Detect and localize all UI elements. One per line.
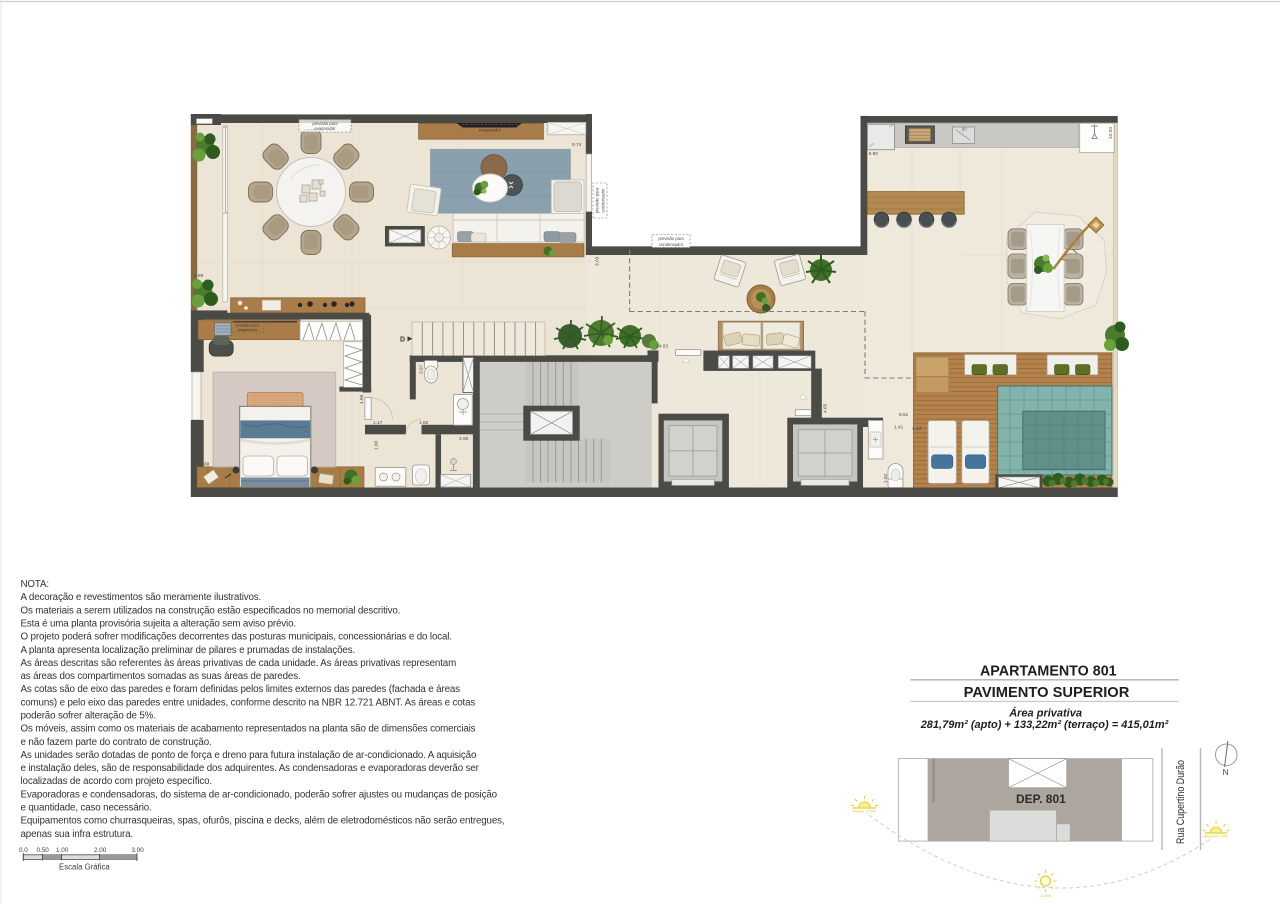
svg-text:0.0: 0.0 xyxy=(19,847,28,854)
svg-text:e instalação deles, são de res: e instalação deles, são de responsabilid… xyxy=(21,763,480,774)
svg-text:As cotas são de eixo das pared: As cotas são de eixo das paredes e foram… xyxy=(21,684,461,695)
svg-text:1.60: 1.60 xyxy=(374,440,380,450)
svg-text:e não fazem parte do contrato: e não fazem parte do contrato de constru… xyxy=(21,737,212,748)
svg-text:0.89: 0.89 xyxy=(194,273,204,279)
svg-text:comuns) e pelo eixo das parede: comuns) e pelo eixo das paredes entre un… xyxy=(21,697,476,708)
svg-text:8.51: 8.51 xyxy=(899,412,909,418)
svg-text:e quantidade, caso necessário.: e quantidade, caso necessário. xyxy=(21,803,152,814)
svg-text:NOTA:: NOTA: xyxy=(21,579,49,590)
svg-text:5.34: 5.34 xyxy=(208,132,214,142)
svg-text:281,79m² (apto) + 133,22m² (te: 281,79m² (apto) + 133,22m² (terraço) = 4… xyxy=(920,719,1169,731)
svg-text:Escala Gráfica: Escala Gráfica xyxy=(59,863,110,872)
svg-text:1.92: 1.92 xyxy=(883,473,889,483)
svg-text:As unidades serão dotadas de p: As unidades serão dotadas de ponto de fo… xyxy=(21,750,477,761)
svg-text:As áreas descritas são referen: As áreas descritas são referentes às áre… xyxy=(21,658,457,669)
svg-text:PAVIMENTO SUPERIOR: PAVIMENTO SUPERIOR xyxy=(964,685,1130,701)
svg-text:condensador: condensador xyxy=(601,188,606,213)
svg-text:condensador: condensador xyxy=(659,242,684,247)
svg-text:O projeto poderá sofrer modifi: O projeto poderá sofrer modificações dec… xyxy=(21,632,452,643)
svg-text:Equipamentos como churrasqueir: Equipamentos como churrasqueiras, spas, … xyxy=(21,816,505,827)
svg-text:A decoração e revestimentos sã: A decoração e revestimentos são merament… xyxy=(21,592,262,603)
svg-text:N: N xyxy=(1223,767,1229,777)
svg-text:DEP. 801: DEP. 801 xyxy=(1016,792,1066,806)
svg-text:3.00: 3.00 xyxy=(132,847,145,854)
svg-text:Área privativa: Área privativa xyxy=(1008,707,1082,720)
svg-text:A planta apresenta localização: A planta apresenta localização prelimina… xyxy=(21,645,356,656)
svg-text:Evaporadoras e condensadoras,: Evaporadoras e condensadoras, do sistema… xyxy=(21,789,498,800)
svg-text:previsão para: previsão para xyxy=(236,324,260,328)
svg-text:2.90: 2.90 xyxy=(459,436,469,442)
svg-text:14.03: 14.03 xyxy=(656,344,668,350)
svg-text:apenas sua infra estrutura.: apenas sua infra estrutura. xyxy=(21,829,134,840)
svg-text:previsão para: previsão para xyxy=(312,121,338,126)
svg-text:evaporador: evaporador xyxy=(238,328,258,332)
svg-text:evaporador: evaporador xyxy=(314,126,336,131)
svg-text:9.74: 9.74 xyxy=(572,142,582,148)
svg-text:Esta é uma planta provisória s: Esta é uma planta provisória sujeita a a… xyxy=(21,619,296,630)
svg-text:12:00h: 12:00h xyxy=(1040,894,1051,898)
svg-text:D: D xyxy=(400,337,405,344)
svg-text:1.41: 1.41 xyxy=(894,425,904,431)
svg-text:Os materiais a serem utilizado: Os materiais a serem utilizados na const… xyxy=(21,605,401,616)
svg-text:localizadas de acordo com proj: localizadas de acordo com projeto especí… xyxy=(21,776,212,787)
svg-text:0.50: 0.50 xyxy=(37,847,50,854)
svg-text:1.00: 1.00 xyxy=(56,847,69,854)
svg-text:1.82: 1.82 xyxy=(419,420,429,426)
svg-text:4.65: 4.65 xyxy=(823,403,829,413)
svg-text:4.43: 4.43 xyxy=(912,426,922,432)
svg-text:poderão sofrer alteração de 5%: poderão sofrer alteração de 5%. xyxy=(21,711,156,722)
svg-text:2.00: 2.00 xyxy=(94,847,107,854)
svg-text:Nascente 7:00h: Nascente 7:00h xyxy=(1204,835,1229,839)
svg-text:3.03: 3.03 xyxy=(595,256,601,266)
svg-text:4.65: 4.65 xyxy=(359,394,365,404)
svg-text:previsão para: previsão para xyxy=(658,236,684,241)
svg-text:evaporador: evaporador xyxy=(479,128,502,133)
svg-text:Os móveis, assim como os mater: Os móveis, assim como os materiais de ac… xyxy=(21,724,476,735)
svg-text:Rua Cupertino Durão: Rua Cupertino Durão xyxy=(1175,760,1187,844)
svg-text:3.97: 3.97 xyxy=(419,364,425,374)
svg-text:10.00: 10.00 xyxy=(1108,127,1114,139)
svg-text:as áreas dos compartimentos so: as áreas dos compartimentos somadas as s… xyxy=(21,671,301,682)
svg-text:APARTAMENTO 801: APARTAMENTO 801 xyxy=(980,663,1117,679)
svg-text:4.68: 4.68 xyxy=(200,462,210,468)
svg-text:previsão para: previsão para xyxy=(595,187,600,213)
svg-text:Poente 17:00h: Poente 17:00h xyxy=(853,810,876,814)
svg-text:6.80: 6.80 xyxy=(869,151,879,157)
svg-text:1.17: 1.17 xyxy=(373,420,383,426)
